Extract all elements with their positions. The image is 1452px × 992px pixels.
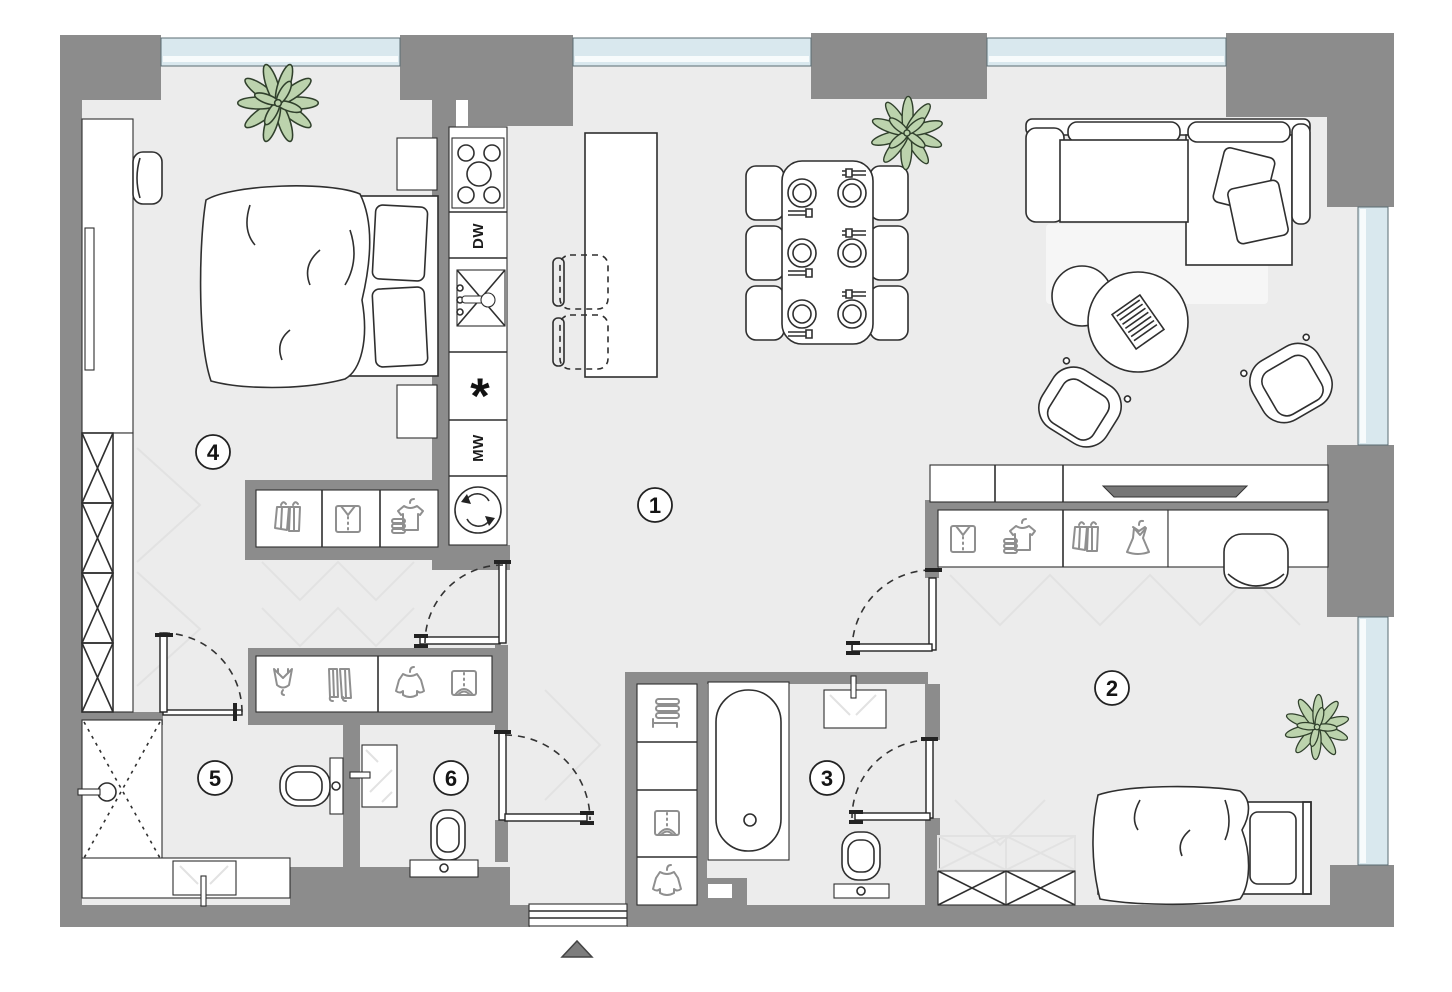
- room-number: 5: [209, 766, 221, 791]
- entrance-threshold: [529, 904, 627, 926]
- room-label-1: 1: [638, 488, 672, 522]
- room-label-3: 3: [810, 761, 844, 795]
- room-label-2: 2: [1095, 671, 1129, 705]
- sofa-pillow: [1227, 179, 1290, 245]
- window-top-1: [161, 38, 400, 66]
- cooktop-icon: [452, 138, 504, 208]
- window-top-3: [987, 38, 1226, 66]
- entrance-direction-triangle: [562, 941, 592, 957]
- dresser2: [938, 836, 1075, 905]
- room-number: 3: [821, 766, 833, 791]
- kitchen-sink-icon: [457, 270, 505, 326]
- entrance: [529, 904, 627, 957]
- pillow: [1250, 812, 1296, 884]
- floor-plan-page: DW * MW: [0, 0, 1452, 992]
- dining-chair: [870, 166, 908, 220]
- dining-chair: [746, 226, 784, 280]
- dishwasher-label: DW: [470, 223, 487, 249]
- wall-niche: [708, 884, 732, 898]
- bathtub: [708, 682, 789, 860]
- dining-chair: [746, 286, 784, 340]
- microwave-label: MW: [470, 434, 487, 462]
- coffee-table: [1088, 272, 1188, 372]
- hallway-closet-row: [256, 656, 492, 712]
- window-top-2: [573, 38, 811, 66]
- room-label-5: 5: [198, 761, 232, 795]
- desk-chair4: [133, 152, 162, 204]
- wardrobe4-tall: [82, 433, 133, 712]
- kitchen-counter: DW * MW: [449, 127, 507, 545]
- bed2: [1093, 787, 1311, 905]
- pillow: [372, 287, 428, 368]
- dining-chair: [870, 226, 908, 280]
- pillow: [372, 205, 428, 282]
- dining-chair: [870, 286, 908, 340]
- room-number: 6: [445, 766, 457, 791]
- dining-set: [746, 161, 908, 344]
- window-right-2: [1358, 617, 1388, 865]
- room-label-4: 4: [196, 435, 230, 469]
- room-number: 2: [1106, 676, 1118, 701]
- duvet: [1093, 787, 1249, 905]
- room-number: 4: [207, 440, 220, 465]
- room-number: 1: [649, 493, 661, 518]
- freezer-symbol: *: [470, 368, 490, 424]
- dining-chair: [746, 166, 784, 220]
- nightstand: [397, 385, 437, 438]
- desk-chair2: [1224, 534, 1288, 588]
- floor-plan-svg: DW * MW: [0, 0, 1452, 992]
- monitor: [85, 228, 94, 370]
- nightstand: [397, 138, 437, 190]
- room-label-6: 6: [434, 761, 468, 795]
- duvet: [201, 186, 370, 388]
- bathroom3-closet: [637, 684, 697, 905]
- tv: [1103, 486, 1247, 497]
- towel-stack-icon: [653, 699, 679, 727]
- wall-notch: [456, 100, 468, 126]
- shower: [78, 720, 162, 860]
- window-right-1: [1358, 207, 1388, 445]
- wardrobe4-row: [256, 490, 438, 547]
